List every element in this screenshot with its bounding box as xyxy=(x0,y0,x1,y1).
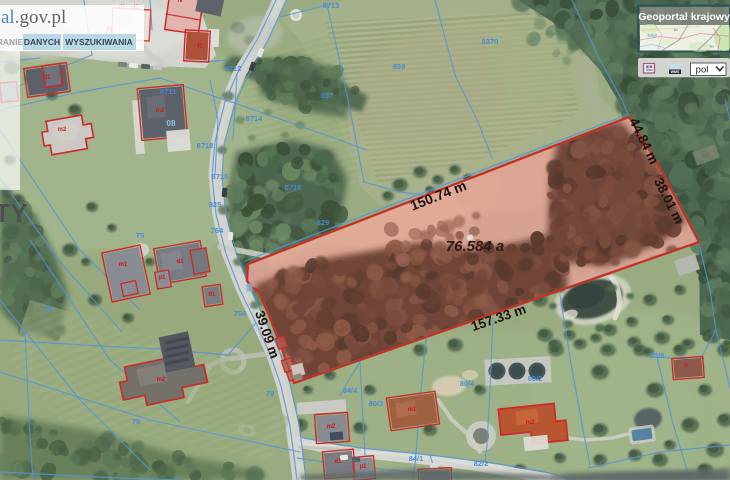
svg-text:WYSZUKIWANIA: WYSZUKIWANIA xyxy=(65,37,133,47)
svg-text:RANIE: RANIE xyxy=(0,37,24,47)
svg-text:Bałgf: Bałgf xyxy=(647,33,657,38)
svg-text:Geoportal krajowy: Geoportal krajowy xyxy=(638,11,730,23)
svg-text:Bu: Bu xyxy=(710,45,714,49)
svg-text:TY: TY xyxy=(0,198,28,228)
svg-text:DANYCH: DANYCH xyxy=(24,37,60,47)
svg-text:WMS: WMS xyxy=(671,70,680,74)
svg-text:al.gov.pl: al.gov.pl xyxy=(1,7,66,28)
svg-text:pol: pol xyxy=(696,65,709,76)
svg-text:krn: krn xyxy=(674,28,679,32)
